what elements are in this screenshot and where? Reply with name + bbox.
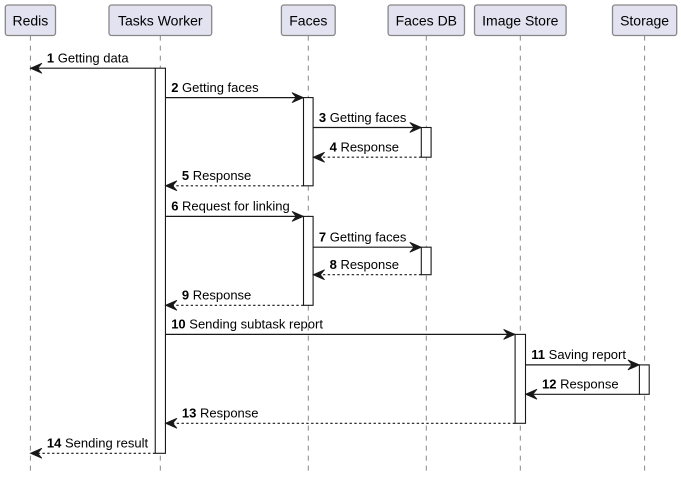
svg-text:11 Saving report: 11 Saving report (531, 347, 626, 362)
svg-text:9 Response: 9 Response (182, 288, 251, 303)
svg-text:7 Getting faces: 7 Getting faces (319, 230, 407, 245)
svg-text:Storage: Storage (620, 13, 669, 29)
svg-text:14 Sending result: 14 Sending result (47, 436, 149, 451)
svg-text:Redis: Redis (13, 13, 49, 29)
svg-text:12 Response: 12 Response (542, 377, 619, 392)
svg-text:6 Request for linking: 6 Request for linking (171, 199, 290, 214)
svg-text:8 Response: 8 Response (330, 257, 399, 272)
svg-text:13 Response: 13 Response (182, 406, 259, 421)
svg-text:2 Getting faces: 2 Getting faces (171, 80, 259, 95)
svg-text:Image Store: Image Store (482, 13, 558, 29)
svg-text:Tasks Worker: Tasks Worker (118, 13, 203, 29)
svg-text:1 Getting data: 1 Getting data (47, 51, 129, 66)
svg-text:Faces: Faces (289, 13, 327, 29)
svg-text:10 Sending subtask report: 10 Sending subtask report (171, 317, 323, 332)
svg-text:3 Getting faces: 3 Getting faces (319, 110, 407, 125)
svg-text:Faces DB: Faces DB (396, 13, 457, 29)
svg-text:5 Response: 5 Response (182, 168, 251, 183)
svg-text:4 Response: 4 Response (330, 140, 399, 155)
